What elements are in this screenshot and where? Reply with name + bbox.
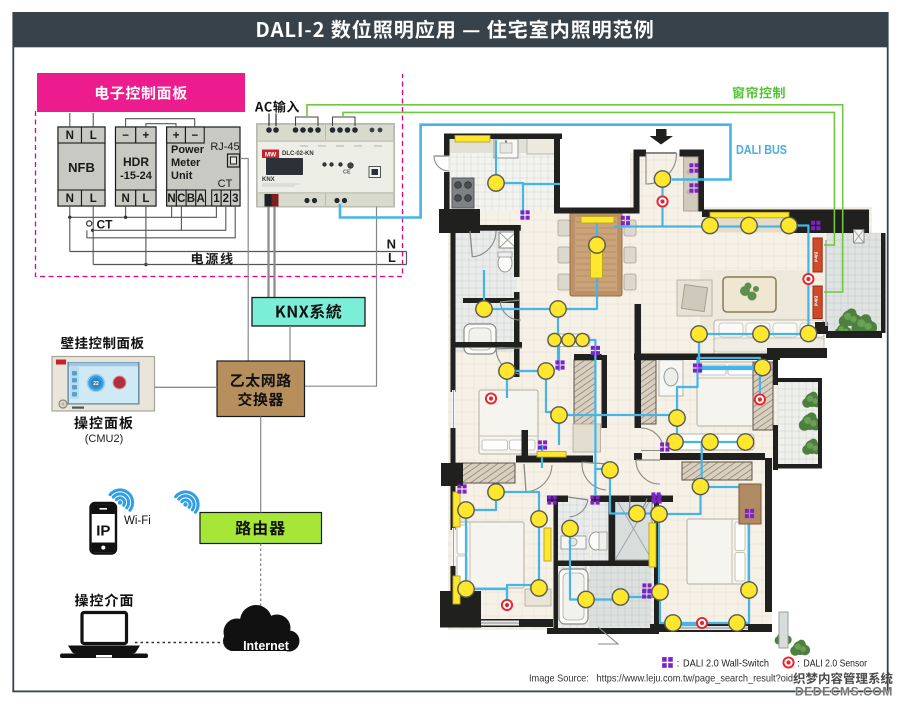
svg-text:−: −	[191, 130, 198, 142]
svg-text:MW: MW	[265, 152, 277, 159]
svg-text:IP: IP	[96, 523, 110, 540]
svg-text:A: A	[196, 193, 204, 205]
svg-text:22: 22	[93, 381, 99, 387]
svg-text::: :	[797, 658, 800, 670]
svg-text:L: L	[388, 250, 396, 265]
svg-text:C: C	[177, 193, 185, 205]
svg-text:N: N	[121, 193, 129, 205]
svg-text:N: N	[66, 193, 74, 205]
svg-text:−: −	[122, 130, 129, 142]
svg-text:DLC-02-KN: DLC-02-KN	[282, 151, 314, 157]
svg-text:CE: CE	[343, 170, 351, 176]
svg-text:CT: CT	[97, 218, 114, 232]
svg-text:1: 1	[213, 193, 220, 205]
svg-text:HDR: HDR	[123, 155, 149, 169]
svg-text:DALI 2.0 Wall-Switch: DALI 2.0 Wall-Switch	[683, 658, 769, 670]
svg-text:KNX: KNX	[262, 177, 275, 183]
svg-text:N: N	[66, 130, 74, 142]
svg-text:RJ-45: RJ-45	[210, 141, 239, 153]
svg-text:L: L	[90, 130, 97, 142]
svg-text:DALI BUS: DALI BUS	[736, 142, 787, 157]
svg-text::: :	[677, 658, 680, 670]
svg-text:N: N	[167, 193, 175, 205]
svg-text:B: B	[187, 193, 195, 205]
svg-text:Blind: Blind	[814, 296, 819, 307]
svg-text:NFB: NFB	[68, 160, 95, 175]
svg-text:+: +	[143, 130, 150, 142]
svg-text:3: 3	[232, 193, 238, 205]
svg-text:Blind: Blind	[814, 252, 819, 263]
svg-text:Meter: Meter	[171, 157, 201, 169]
svg-text:DALI 2.0 Sensor: DALI 2.0 Sensor	[804, 658, 868, 670]
svg-text:L: L	[90, 193, 97, 205]
svg-text:Wi-Fi: Wi-Fi	[124, 515, 151, 527]
svg-text:(CMU2): (CMU2)	[85, 433, 124, 445]
svg-text:L: L	[142, 193, 149, 205]
svg-text:DEDECMS.COM: DEDECMS.COM	[795, 685, 893, 699]
svg-text:+: +	[173, 130, 180, 142]
svg-text:Power: Power	[171, 144, 205, 156]
svg-text:Unit: Unit	[171, 170, 193, 182]
svg-text:Image Source: https://www.le: Image Source: https://www.leju.com.tw/pa…	[529, 673, 793, 685]
svg-text:Internet: Internet	[243, 639, 290, 653]
svg-text:-15-24: -15-24	[120, 170, 153, 182]
svg-text:CT: CT	[218, 178, 233, 190]
svg-text:2: 2	[223, 193, 229, 205]
